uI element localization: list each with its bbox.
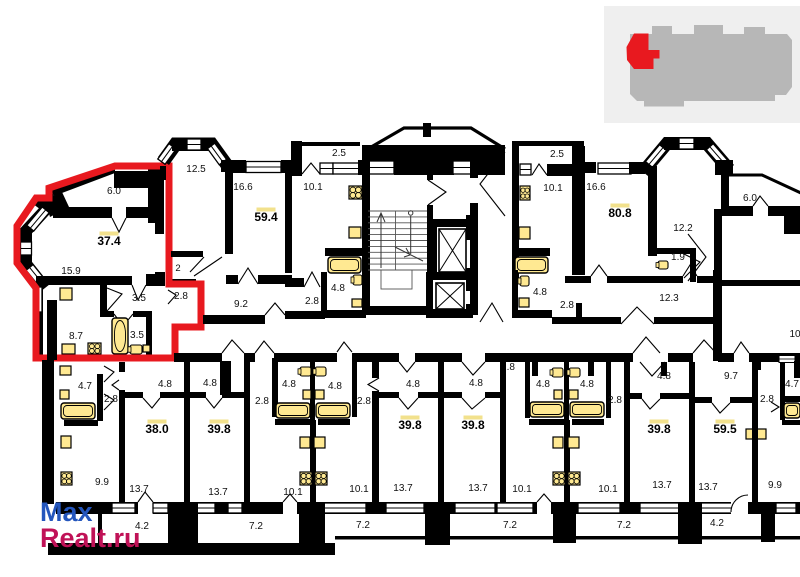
svg-text:13.7: 13.7 bbox=[698, 482, 718, 493]
svg-text:9.9: 9.9 bbox=[95, 477, 109, 488]
svg-text:12.5: 12.5 bbox=[186, 164, 206, 175]
svg-text:4.8: 4.8 bbox=[657, 371, 671, 382]
svg-text:Realt.ru: Realt.ru bbox=[40, 523, 141, 553]
svg-text:4.7: 4.7 bbox=[78, 381, 92, 392]
svg-text:2.8: 2.8 bbox=[174, 291, 188, 302]
svg-text:12.3: 12.3 bbox=[659, 293, 679, 304]
svg-text:10.1: 10.1 bbox=[303, 182, 323, 193]
svg-text:4.8: 4.8 bbox=[536, 379, 550, 390]
svg-text:10: 10 bbox=[789, 329, 800, 340]
svg-text:10.1: 10.1 bbox=[349, 484, 369, 495]
svg-text:4.8: 4.8 bbox=[580, 379, 594, 390]
svg-text:3.5: 3.5 bbox=[130, 330, 144, 341]
svg-text:15.9: 15.9 bbox=[61, 266, 81, 277]
svg-text:2.8: 2.8 bbox=[255, 396, 269, 407]
svg-text:9.7: 9.7 bbox=[724, 371, 738, 382]
svg-text:2.8: 2.8 bbox=[305, 296, 319, 307]
svg-text:80.8: 80.8 bbox=[608, 206, 632, 220]
svg-text:4.8: 4.8 bbox=[533, 287, 547, 298]
svg-text:4.8: 4.8 bbox=[158, 379, 172, 390]
svg-text:4.2: 4.2 bbox=[710, 518, 724, 529]
svg-text:10.1: 10.1 bbox=[283, 487, 303, 498]
svg-text:38.0: 38.0 bbox=[145, 422, 169, 436]
svg-text:4.7: 4.7 bbox=[785, 379, 799, 390]
svg-text:7.2: 7.2 bbox=[356, 520, 370, 531]
svg-text:3.5: 3.5 bbox=[132, 293, 146, 304]
svg-text:16.6: 16.6 bbox=[233, 182, 253, 193]
svg-text:2.8: 2.8 bbox=[357, 396, 371, 407]
svg-text:9.9: 9.9 bbox=[768, 480, 782, 491]
svg-text:13.7: 13.7 bbox=[208, 487, 228, 498]
svg-text:10.1: 10.1 bbox=[512, 484, 532, 495]
svg-text:2: 2 bbox=[175, 263, 180, 274]
svg-text:37.4: 37.4 bbox=[97, 234, 121, 248]
svg-text:4.8: 4.8 bbox=[328, 381, 342, 392]
svg-text:7.2: 7.2 bbox=[503, 520, 517, 531]
svg-text:10.1: 10.1 bbox=[598, 484, 618, 495]
svg-text:39.8: 39.8 bbox=[647, 422, 671, 436]
svg-text:13.7: 13.7 bbox=[652, 480, 672, 491]
svg-text:59.5: 59.5 bbox=[713, 422, 737, 436]
svg-text:4.8: 4.8 bbox=[406, 379, 420, 390]
svg-text:2.5: 2.5 bbox=[550, 149, 564, 160]
svg-text:16.6: 16.6 bbox=[586, 182, 606, 193]
svg-text:12.2: 12.2 bbox=[673, 223, 693, 234]
svg-text:39.8: 39.8 bbox=[398, 418, 422, 432]
svg-text:2.5: 2.5 bbox=[332, 148, 346, 159]
svg-text:7.2: 7.2 bbox=[617, 520, 631, 531]
svg-text:4.8: 4.8 bbox=[469, 378, 483, 389]
svg-text:13.7: 13.7 bbox=[468, 483, 488, 494]
svg-text:2.8: 2.8 bbox=[608, 395, 622, 406]
svg-text:9.2: 9.2 bbox=[234, 299, 248, 310]
svg-text:4.8: 4.8 bbox=[331, 283, 345, 294]
svg-text:1.9: 1.9 bbox=[671, 252, 685, 263]
svg-text:7.2: 7.2 bbox=[249, 521, 263, 532]
svg-text:2.8: 2.8 bbox=[560, 300, 574, 311]
svg-text:39.8: 39.8 bbox=[207, 422, 231, 436]
svg-text:39.8: 39.8 bbox=[461, 418, 485, 432]
svg-text:4.8: 4.8 bbox=[203, 378, 217, 389]
svg-text:59.4: 59.4 bbox=[254, 210, 278, 224]
svg-text:10.1: 10.1 bbox=[543, 183, 563, 194]
svg-text:2.8: 2.8 bbox=[760, 394, 774, 405]
svg-text:13.7: 13.7 bbox=[393, 483, 413, 494]
svg-text:4.8: 4.8 bbox=[282, 379, 296, 390]
svg-text:8.7: 8.7 bbox=[69, 331, 83, 342]
svg-text:6.0: 6.0 bbox=[107, 186, 121, 197]
